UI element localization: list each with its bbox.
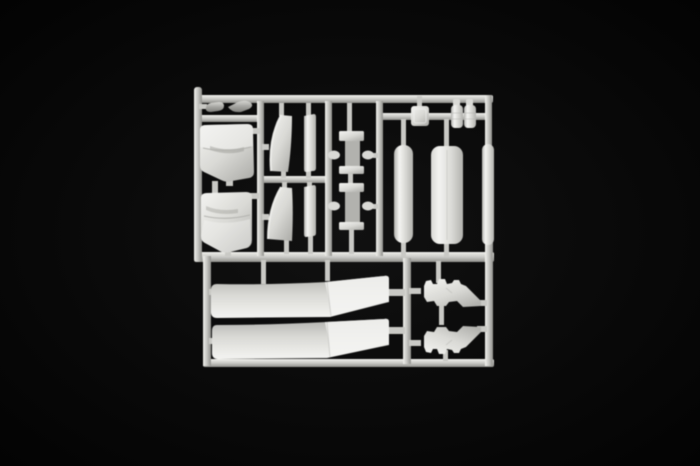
step-upper-top-flange <box>339 131 364 141</box>
runner-divider-1 <box>257 101 264 256</box>
runner-right-upper <box>485 95 492 149</box>
stem <box>347 103 352 133</box>
step-lower-bottom-flange <box>339 222 364 230</box>
model-kit-sprue-photo <box>0 0 700 466</box>
side-pin <box>328 202 340 211</box>
strip-lower-part <box>304 185 316 237</box>
body-panel-upper-flap <box>200 124 253 149</box>
side-pin <box>362 151 374 160</box>
side-pin <box>362 202 374 211</box>
stem <box>401 241 406 257</box>
stem <box>444 242 449 257</box>
stem <box>439 305 444 325</box>
runner-left-upper <box>194 87 202 262</box>
runner-bottom <box>203 359 494 367</box>
stem <box>212 181 218 194</box>
stem <box>308 235 313 254</box>
step-lower-web <box>345 192 360 222</box>
canister-b-body <box>464 105 476 128</box>
runner-divider-3 <box>376 101 383 256</box>
stem <box>279 103 284 116</box>
stem <box>262 214 269 220</box>
stem <box>349 228 354 254</box>
stem <box>409 288 421 294</box>
stem <box>444 119 449 148</box>
step-upper-bottom-flange <box>339 166 364 174</box>
step-upper-web <box>345 141 360 167</box>
stem <box>199 104 207 109</box>
stem <box>401 119 406 147</box>
runner-divider-bottom <box>403 258 411 364</box>
stem <box>325 260 330 281</box>
tank-slim-left-part <box>394 145 413 243</box>
side-pin <box>328 151 340 160</box>
stem <box>261 260 266 284</box>
runner-divider-2 <box>325 101 332 256</box>
step-lower-top-flange <box>339 183 364 192</box>
runner-mid-bar-col2 <box>260 176 330 183</box>
strip-upper-part <box>304 114 316 172</box>
sprue-photo-canvas <box>0 0 700 466</box>
stem <box>409 340 421 346</box>
stem <box>262 144 269 150</box>
canister-a-body <box>451 105 463 128</box>
runner-left-lower <box>203 256 211 366</box>
runner-sub-bar-col1 <box>202 115 264 122</box>
tank-slim-right-part <box>482 144 494 245</box>
